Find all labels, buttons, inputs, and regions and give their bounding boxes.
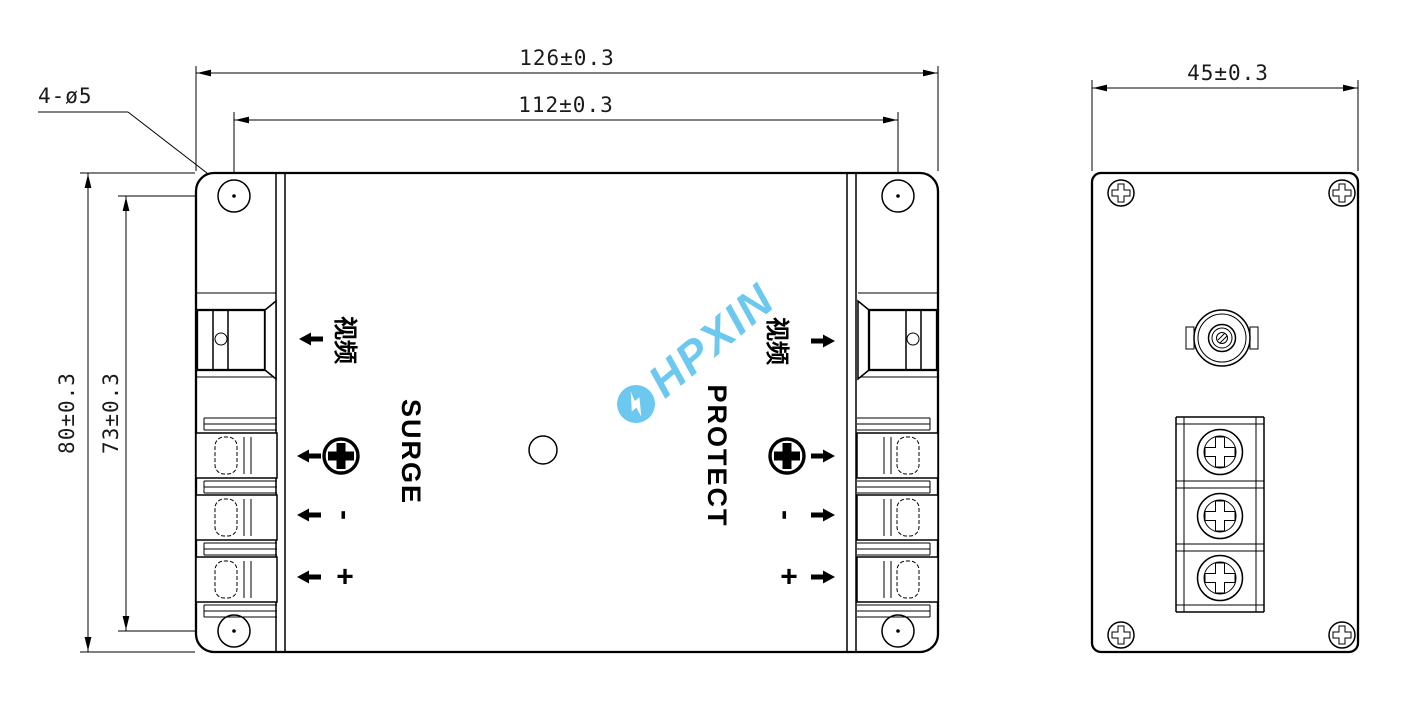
dim-overall-depth-text: 45±0.3 [1187, 61, 1269, 85]
minus-in-label: - [329, 510, 362, 520]
mounting-hole-top-right [882, 180, 914, 212]
plus-out-label: + [780, 561, 798, 594]
dim-hole-span-height-text: 73±0.3 [99, 372, 123, 454]
terminal-screw [1198, 494, 1243, 539]
hole-callout-text: 4-ø5 [38, 84, 93, 108]
engineering-drawing: 126±0.3 112±0.3 4-ø5 80±0.3 73±0.3 [0, 0, 1426, 719]
mounting-hole-bottom-right [882, 615, 914, 647]
phillips-screw [1108, 180, 1134, 206]
earth-terminal-icon [324, 439, 358, 473]
terminal-screw [1198, 430, 1243, 475]
protect-label: PROTECT [702, 384, 732, 527]
minus-in-annotation: - [297, 509, 362, 522]
dimension-hole-callout: 4-ø5 [38, 84, 219, 183]
center-hole [529, 436, 557, 464]
terminal-cell [857, 495, 938, 540]
phillips-screw [1329, 622, 1355, 648]
terminal-cell [196, 433, 277, 478]
minus-out-label: - [770, 510, 803, 520]
side-view [1092, 173, 1358, 652]
surge-label: SURGE [396, 399, 426, 505]
phillips-screw [1108, 622, 1134, 648]
terminal-cell [196, 495, 277, 540]
dimension-overall-height: 80±0.3 [55, 173, 195, 652]
terminal-block-right [857, 418, 938, 617]
minus-out-annotation: - [770, 509, 836, 522]
dim-overall-width-text: 126±0.3 [519, 46, 615, 70]
mounting-hole-top-left [218, 180, 250, 212]
earth-terminal-icon [770, 439, 804, 473]
dim-hole-span-width-text: 112±0.3 [518, 93, 614, 117]
dimension-overall-depth: 45±0.3 [1092, 61, 1358, 171]
phillips-screw [1329, 180, 1355, 206]
dim-overall-height-text: 80±0.3 [55, 372, 79, 454]
terminal-block-left [196, 418, 277, 617]
plus-in-label: + [336, 561, 354, 594]
dimension-hole-span-width: 112±0.3 [234, 93, 898, 183]
terminal-cell [196, 557, 277, 602]
terminal-screw [1198, 556, 1243, 601]
mounting-hole-bottom-left [218, 615, 250, 647]
terminal-cell [857, 433, 938, 478]
video-in-label: 视频 [331, 316, 359, 364]
terminal-cell [857, 557, 938, 602]
front-view: 视频 - + 视频 [196, 173, 938, 652]
